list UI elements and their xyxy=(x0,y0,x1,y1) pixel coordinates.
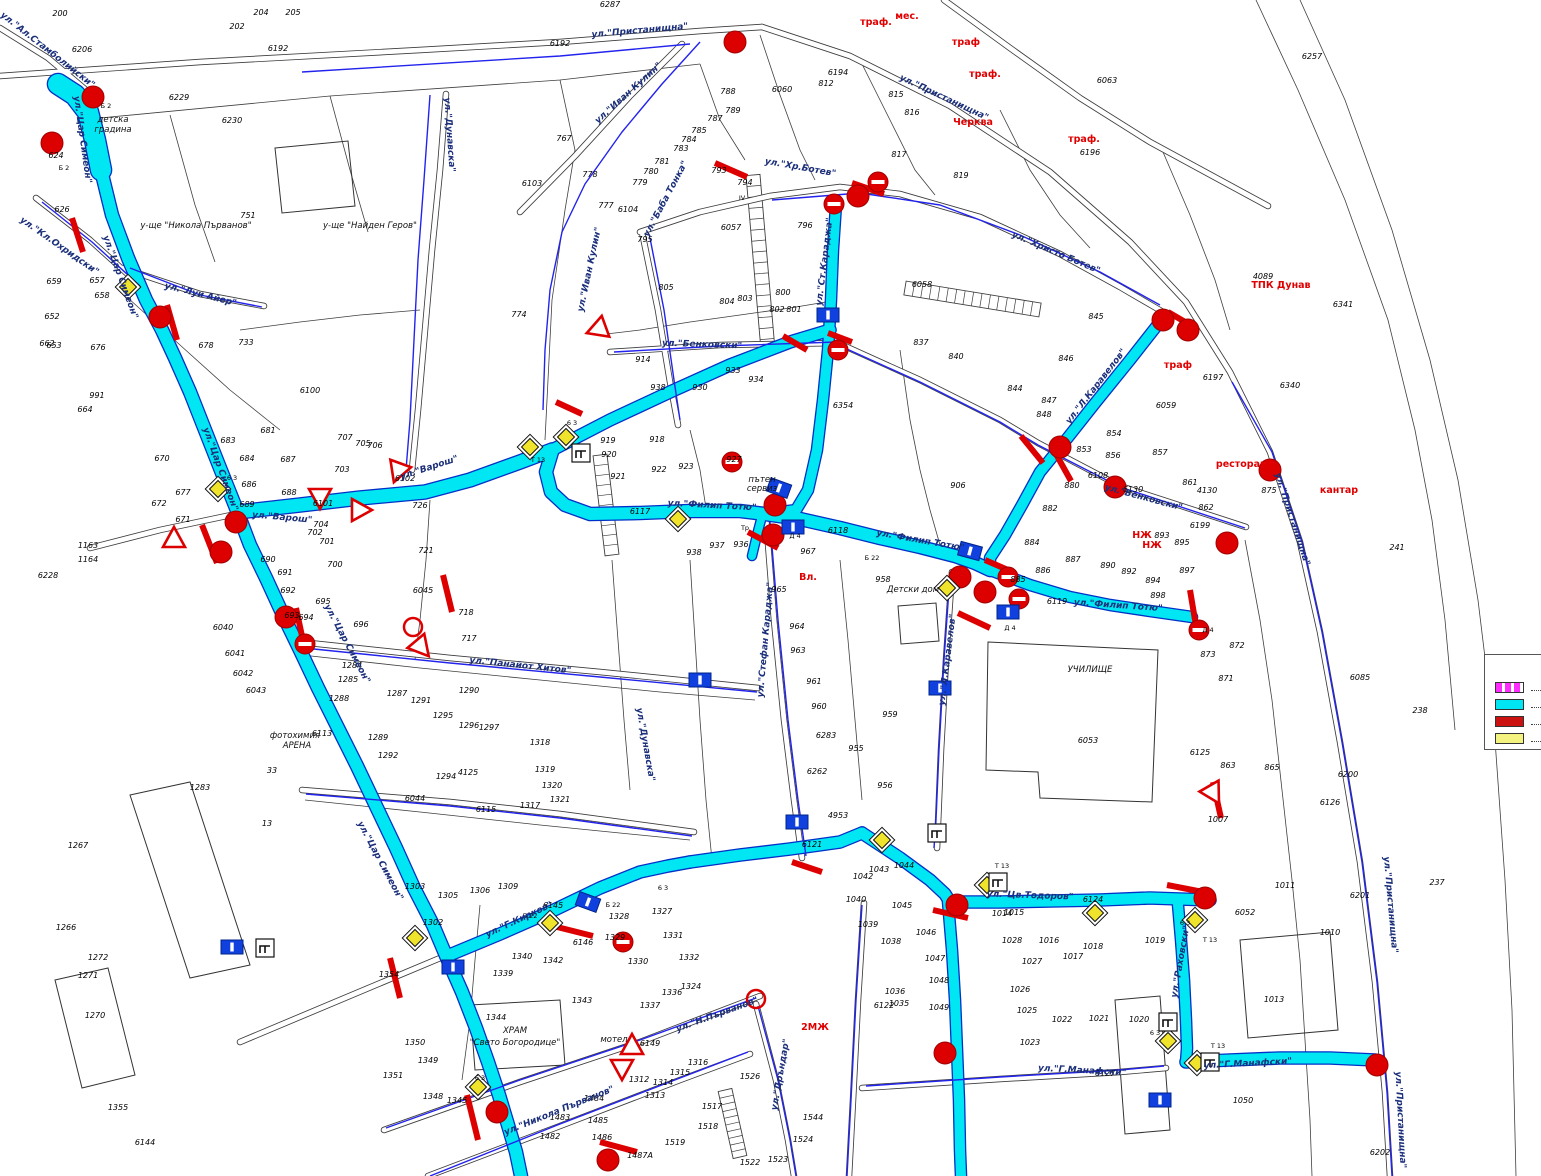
parcel-number: 783 xyxy=(673,144,688,153)
garage-strip-rung xyxy=(597,484,611,486)
parcel-number: 6115 xyxy=(476,805,496,814)
garage-strip-rung xyxy=(751,229,765,230)
parcel-number: 890 xyxy=(1100,561,1115,570)
parcel-number: 856 xyxy=(1105,451,1120,460)
parcel-number: 6121 xyxy=(802,840,822,849)
legend-label-dots xyxy=(1531,740,1541,742)
no-entry-bar xyxy=(299,642,312,646)
parcel-number: 696 xyxy=(353,620,368,629)
parcel-number: 693 xyxy=(284,611,299,620)
street-label: ул."Кл.Охридски" xyxy=(18,215,101,277)
parcel-number: 1027 xyxy=(1022,957,1043,966)
street-label: ул."Пристанищна" xyxy=(1392,1071,1407,1168)
map-annotation: 6 3 xyxy=(567,419,577,427)
triangle-marker-icon xyxy=(583,316,609,344)
parcel-number: 1038 xyxy=(881,937,901,946)
parcel-number: 844 xyxy=(1007,384,1022,393)
info-sign-bar xyxy=(698,676,701,685)
parcel-number: 923 xyxy=(678,462,693,471)
parcel-number: 1340 xyxy=(512,952,532,961)
parcel-number: 6146 xyxy=(573,938,593,947)
garage-strip-rung xyxy=(758,317,772,318)
parcel-number: 1042 xyxy=(853,872,873,881)
parcel-number: 6354 xyxy=(833,401,853,410)
road-surface xyxy=(944,0,1268,206)
parcel-number: 956 xyxy=(877,781,892,790)
parcel-number: 1015 xyxy=(1004,908,1024,917)
parcel-number: 664 xyxy=(77,405,92,414)
street-label: ул."Иван Кулин" xyxy=(576,226,604,312)
block-line xyxy=(1000,110,1090,248)
parcel-number: 692 xyxy=(280,586,295,595)
garage-strip-rung xyxy=(604,544,618,546)
parcel-number: 1044 xyxy=(894,861,914,870)
water-main xyxy=(690,833,862,862)
parcel-number: 847 xyxy=(1041,396,1057,405)
parcel-number: 938 xyxy=(650,383,665,392)
parcel-number: 853 xyxy=(1076,445,1091,454)
garage-strip-rung xyxy=(755,284,769,285)
parcel-number: 1303 xyxy=(405,882,425,891)
parcel-number: 6192 xyxy=(550,39,570,48)
parcel-number: 1320 xyxy=(542,781,562,790)
map-annotation: Т 13 xyxy=(994,862,1009,870)
parcel-number: 1294 xyxy=(436,772,456,781)
legend-label-dots xyxy=(1531,723,1541,725)
parcel-number: 1487А xyxy=(627,1151,653,1160)
parcel-number: 624 xyxy=(48,151,63,160)
garage-strip-rung xyxy=(732,1149,746,1152)
garage-strip-rung xyxy=(971,292,973,306)
building-outline xyxy=(1240,932,1338,1038)
parcel-number: 1163 xyxy=(78,541,98,550)
parcel-number: 805 xyxy=(658,283,673,292)
parcel-number: 854 xyxy=(1106,429,1121,438)
poi-label: детска xyxy=(96,115,128,125)
parcel-number: 1295 xyxy=(433,711,453,720)
parcel-number: 1050 xyxy=(1233,1096,1253,1105)
parcel-number: 1288 xyxy=(329,694,349,703)
parcel-number: 1305 xyxy=(438,891,458,900)
parcel-number: 689 xyxy=(239,500,254,509)
parcel-number: 804 xyxy=(719,297,734,306)
barrier-bar-icon xyxy=(443,575,452,612)
map-annotation: Д 4 xyxy=(1004,624,1015,632)
hydrant-marker-icon xyxy=(847,185,869,207)
parcel-number: 721 xyxy=(418,546,433,555)
parcel-number: 991 xyxy=(89,391,104,400)
map-annotation: Т 13 xyxy=(1210,1042,1225,1050)
parcel-number: 6262 xyxy=(807,767,827,776)
parcel-number: 707 xyxy=(337,433,353,442)
garage-strip-rung xyxy=(730,1142,744,1145)
legend-item xyxy=(1495,730,1541,747)
parcel-number: 6149 xyxy=(640,1039,660,1048)
parcel-number: 963 xyxy=(790,646,805,655)
parcel-number: 200 xyxy=(52,9,67,18)
poi-label: Детски дом xyxy=(886,585,940,595)
hydrant-marker-icon xyxy=(762,524,784,546)
parcel-number: 898 xyxy=(1150,591,1165,600)
parcel-number: 718 xyxy=(458,608,473,617)
parcel-number: 6053 xyxy=(1078,736,1098,745)
parcel-number: 733 xyxy=(238,338,253,347)
parcel-number: 726 xyxy=(412,501,427,510)
parcel-number: 1544 xyxy=(803,1113,823,1122)
parcel-number: 1266 xyxy=(56,923,76,932)
block-line xyxy=(1160,145,1230,330)
parcel-number: 1010 xyxy=(1320,928,1340,937)
parcel-number: 779 xyxy=(632,178,647,187)
parcel-number: 1526 xyxy=(740,1072,760,1081)
parcel-number: 840 xyxy=(948,352,963,361)
info-sign-bar xyxy=(826,311,829,320)
parcel-number: 657 xyxy=(89,276,105,285)
parcel-number: 1309 xyxy=(498,882,518,891)
parcel-number: 700 xyxy=(327,560,342,569)
garage-strip-rung xyxy=(729,1135,743,1138)
barrier-bar-icon xyxy=(792,862,822,872)
blocks-layer xyxy=(100,0,1516,1176)
parcel-number: 6230 xyxy=(222,116,242,125)
garage-strip-rung xyxy=(1030,302,1032,316)
parcel-number: 1017 xyxy=(1063,952,1084,961)
parcel-number: 33 xyxy=(267,766,277,775)
garage-strip-rung xyxy=(594,464,608,466)
poi-label-red: мес. xyxy=(895,11,918,22)
parcel-number: 1321 xyxy=(550,795,570,804)
parcel-number: 1523 xyxy=(768,1155,788,1164)
parcel-number: 1344 xyxy=(486,1013,506,1022)
parcel-number: 937 xyxy=(709,541,725,550)
parcel-number: 681 xyxy=(260,426,275,435)
parcel-number: 960 xyxy=(811,702,826,711)
map-annotation: Д 4 xyxy=(789,532,800,540)
garage-strip-rung xyxy=(980,293,982,307)
garage-strip-rung xyxy=(938,287,940,301)
parcel-number: 1313 xyxy=(645,1091,665,1100)
garage-strip-rung xyxy=(954,289,956,303)
parcel-number: 1011 xyxy=(1275,881,1295,890)
parcel-number: 780 xyxy=(643,167,658,176)
parcel-number: 914 xyxy=(635,355,650,364)
parcel-number: 717 xyxy=(461,634,477,643)
parcel-number: 1324 xyxy=(681,982,701,991)
parcel-number: 1343 xyxy=(572,996,592,1005)
parcel-number: 626 xyxy=(54,205,69,214)
hydrant-marker-icon xyxy=(1216,532,1238,554)
block-line xyxy=(170,115,215,262)
info-sign-bar xyxy=(795,818,798,827)
parcel-number: 1519 xyxy=(665,1138,685,1147)
block-line xyxy=(330,96,368,232)
parcel-number: 1317 xyxy=(520,801,541,810)
parcel-number: 892 xyxy=(1121,567,1136,576)
parcel-number: 875 xyxy=(1261,486,1276,495)
parcel-number: 1013 xyxy=(1264,995,1284,1004)
parcel-number: 6042 xyxy=(233,669,253,678)
parcel-number: 955 xyxy=(848,744,863,753)
hydrant-marker-icon xyxy=(974,581,996,603)
parcel-number: 1164 xyxy=(78,555,98,564)
legend-label-dots xyxy=(1531,706,1541,708)
parcel-number: 701 xyxy=(319,537,334,546)
parcel-number: 238 xyxy=(1412,706,1427,715)
parcel-number: 670 xyxy=(154,454,169,463)
garage-strip-rung xyxy=(756,295,770,296)
parcel-number: 1021 xyxy=(1089,1014,1109,1023)
parcel-number: 6340 xyxy=(1280,381,1300,390)
street-label: ул."Дунавска" xyxy=(634,707,657,782)
parcel-number: 205 xyxy=(285,8,300,17)
garage-strip-rung xyxy=(753,251,767,252)
street-label: ул."Луи Айер" xyxy=(163,281,237,309)
road-surface xyxy=(240,956,445,1042)
parcel-number: 658 xyxy=(94,291,109,300)
parcel-number: 684 xyxy=(239,454,254,463)
parcel-number: 887 xyxy=(1065,555,1081,564)
parcel-number: 788 xyxy=(720,87,735,96)
parcel-number: 6197 xyxy=(1203,373,1224,382)
parcel-number: 1046 xyxy=(916,928,936,937)
parcel-number: 1318 xyxy=(530,738,550,747)
block-line xyxy=(1245,540,1312,1176)
parcel-number: 803 xyxy=(737,294,752,303)
parcel-number: 672 xyxy=(151,499,166,508)
garage-strip-rung xyxy=(963,291,965,305)
block-line xyxy=(240,310,420,330)
parcel-number: 1354 xyxy=(379,970,399,979)
parcel-number: 678 xyxy=(198,341,213,350)
garage-strip-rung xyxy=(723,1109,737,1112)
parcel-number: 784 xyxy=(681,135,696,144)
parcel-number: 819 xyxy=(953,171,968,180)
block-line xyxy=(840,560,862,800)
info-sign-bar xyxy=(451,963,454,972)
map-annotation: 6 3 xyxy=(658,884,668,892)
garage-strip-rung xyxy=(754,273,768,274)
building-outline xyxy=(275,141,355,213)
parcel-number: 6126 xyxy=(1320,798,1340,807)
parcel-number: 6101 xyxy=(313,499,333,508)
garage-strip-rung xyxy=(726,1122,740,1125)
parcel-number: 13 xyxy=(262,819,272,828)
parcel-number: 1007 xyxy=(1208,815,1229,824)
map-page: { "canvas":{"w":1541,"h":1176,"bg":"#fff… xyxy=(0,0,1541,1176)
parcel-number: 662 xyxy=(39,339,54,348)
parcel-number: 1337 xyxy=(640,1001,661,1010)
parcel-number: 6229 xyxy=(169,93,189,102)
parcel-number: 703 xyxy=(334,465,349,474)
garage-strip-rung xyxy=(760,338,774,339)
parcel-number: 1319 xyxy=(535,765,555,774)
parcel-number: 958 xyxy=(875,575,890,584)
parcel-number: 920 xyxy=(601,450,616,459)
parcel-number: 1025 xyxy=(1017,1006,1037,1015)
street-label: ул."Христо Ботев" xyxy=(1010,230,1101,276)
parcel-number: 6200 xyxy=(1338,770,1358,779)
block-line xyxy=(1256,0,1455,730)
parcel-number: 202 xyxy=(229,22,244,31)
labels-layer: 2002042052026206619262306229751624626659… xyxy=(0,0,1446,1169)
parcel-number: 837 xyxy=(913,338,929,347)
parcel-number: 6063 xyxy=(1097,76,1117,85)
parcel-number: 1355 xyxy=(108,1103,128,1112)
parcel-number: 959 xyxy=(882,710,897,719)
map-annotation: Д 4 xyxy=(1202,626,1213,634)
poi-label: сервиз xyxy=(747,484,778,494)
parcel-number: 1289 xyxy=(368,733,388,742)
poi-label: мотел xyxy=(600,1035,628,1045)
parcel-number: 1485 xyxy=(588,1116,608,1125)
hydrant-marker-icon xyxy=(149,306,171,328)
poi-label-red: траф xyxy=(1164,360,1192,371)
building-outline xyxy=(55,968,135,1088)
parcel-number: 690 xyxy=(260,555,275,564)
parcel-number: 694 xyxy=(298,613,313,622)
parcel-number: 1270 xyxy=(85,1011,105,1020)
legend-item xyxy=(1495,713,1541,730)
parcel-number: 802 xyxy=(769,305,784,314)
poi-label-red: НЖ xyxy=(1142,540,1162,551)
block-line xyxy=(1300,0,1516,1176)
legend-item xyxy=(1495,696,1541,713)
parcel-number: 886 xyxy=(1035,566,1050,575)
block-line xyxy=(690,560,712,860)
parcel-number: 4125 xyxy=(458,768,478,777)
parcel-number: 1023 xyxy=(1020,1038,1040,1047)
map-annotation: Тр xyxy=(740,524,749,532)
parcel-number: 1336 xyxy=(662,988,682,997)
garage-strip-rung xyxy=(603,534,617,536)
parcel-number: 1348 xyxy=(423,1092,443,1101)
legend-label-dots xyxy=(1531,689,1541,691)
parcel-number: 1522 xyxy=(740,1158,760,1167)
parcel-number: 1524 xyxy=(793,1135,813,1144)
parcel-number: 687 xyxy=(280,455,296,464)
poi-label-red: ТПК Дунав xyxy=(1251,280,1310,291)
legend-swatch-yellow-line xyxy=(1495,733,1524,744)
parcel-number: 1486 xyxy=(592,1133,612,1142)
street-label: ул."Пристанищна" xyxy=(1381,856,1399,953)
poi-label: у-ще "Никола Първанов" xyxy=(139,221,251,231)
hydrant-marker-icon xyxy=(934,1042,956,1064)
parcel-number: 882 xyxy=(1042,504,1057,513)
parcel-number: 967 xyxy=(800,547,816,556)
parcel-number: 1020 xyxy=(1129,1015,1149,1024)
parcel-number: 688 xyxy=(281,488,296,497)
parcel-number: 862 xyxy=(1198,503,1213,512)
parcel-number: 863 xyxy=(1220,761,1235,770)
building-outline xyxy=(898,603,939,644)
poi-label-red: кантар xyxy=(1320,485,1358,496)
parcel-number: 895 xyxy=(1174,538,1189,547)
parcel-number: 1315 xyxy=(670,1068,690,1077)
parcel-number: 1018 xyxy=(1083,942,1103,951)
city-water-map[interactable]: 2002042052026206619262306229751624626659… xyxy=(0,0,1541,1176)
garage-strip-rung xyxy=(759,328,773,329)
parcel-number: 1329 xyxy=(605,933,625,942)
hydrant-marker-icon xyxy=(1152,309,1174,331)
hydrant-marker-icon xyxy=(210,541,232,563)
parcel-number: 1022 xyxy=(1052,1015,1072,1024)
info-sign-bar xyxy=(1006,608,1009,617)
parcel-number: 789 xyxy=(725,106,740,115)
street-label: ул."Н.Първанов" xyxy=(675,996,760,1035)
parcel-number: 1312 xyxy=(629,1075,649,1084)
parcel-number: 1517 xyxy=(702,1102,723,1111)
parcel-number: 6122 xyxy=(874,1001,894,1010)
poi-label-red: Вл. xyxy=(799,572,817,583)
parcel-number: 801 xyxy=(786,305,801,314)
map-annotation: Б 2 xyxy=(59,164,70,172)
garage-strip-rung xyxy=(1022,300,1024,314)
garage-strip-rung xyxy=(754,262,768,263)
parcel-number: 6043 xyxy=(246,686,266,695)
parcel-number: 897 xyxy=(1179,566,1195,575)
parcel-number: 918 xyxy=(649,435,664,444)
parcel-number: 1016 xyxy=(1039,936,1059,945)
parcel-number: 6257 xyxy=(1302,52,1323,61)
parcel-number: 6044 xyxy=(405,794,425,803)
info-sign-bar xyxy=(1158,1096,1161,1105)
no-entry-bar xyxy=(828,202,841,206)
parcel-number: 6199 xyxy=(1190,521,1210,530)
parcel-number: 1351 xyxy=(383,1071,403,1080)
garage-strip-rung xyxy=(601,524,615,526)
map-annotation: Б 22 xyxy=(865,554,880,562)
parcel-number: 1028 xyxy=(1002,936,1022,945)
parcel-number: 848 xyxy=(1036,410,1051,419)
legend-swatch-magenta-line xyxy=(1495,682,1524,693)
garage-strip-rung xyxy=(595,474,609,476)
parcel-number: 927 xyxy=(726,455,742,464)
parcel-number: 793 xyxy=(711,166,726,175)
street-label: ул."Пристанищна" xyxy=(1272,472,1311,567)
parcel-number: 777 xyxy=(598,201,614,210)
parcel-number: 6060 xyxy=(772,85,792,94)
triangle-marker-icon xyxy=(1199,781,1228,809)
parcel-number: 936 xyxy=(733,540,748,549)
parcel-number: 1045 xyxy=(892,901,912,910)
barrier-bar-icon xyxy=(958,613,990,628)
parcel-number: 6052 xyxy=(1235,908,1255,917)
hydrant-marker-icon xyxy=(1177,319,1199,341)
garage-strip-rung xyxy=(988,295,990,309)
garage-strip-rung xyxy=(997,296,999,310)
parcel-number: 683 xyxy=(220,436,235,445)
parcel-number: 706 xyxy=(367,441,382,450)
parcel-number: 880 xyxy=(1064,481,1079,490)
hydrant-marker-icon xyxy=(1366,1054,1388,1076)
hydrant-marker-icon xyxy=(486,1101,508,1123)
road-casing xyxy=(944,0,1268,206)
poi-label-red: Черква xyxy=(953,117,993,128)
map-annotation: Т 13 xyxy=(530,456,545,464)
parcel-number: 861 xyxy=(1182,478,1197,487)
map-annotation: Б 2 xyxy=(101,102,112,110)
legend-swatch-cyan-line xyxy=(1495,699,1524,710)
parcel-number: 6202 xyxy=(1370,1148,1390,1157)
parcel-number: 817 xyxy=(891,150,907,159)
parcel-number: 922 xyxy=(651,465,666,474)
poi-label-red: траф xyxy=(952,37,980,48)
parcel-number: 671 xyxy=(175,515,190,524)
parcel-number: 6287 xyxy=(600,0,621,9)
parcel-number: 702 xyxy=(307,528,322,537)
parcel-number: 6108 xyxy=(1088,471,1108,480)
garage-strip-rung xyxy=(946,288,948,302)
